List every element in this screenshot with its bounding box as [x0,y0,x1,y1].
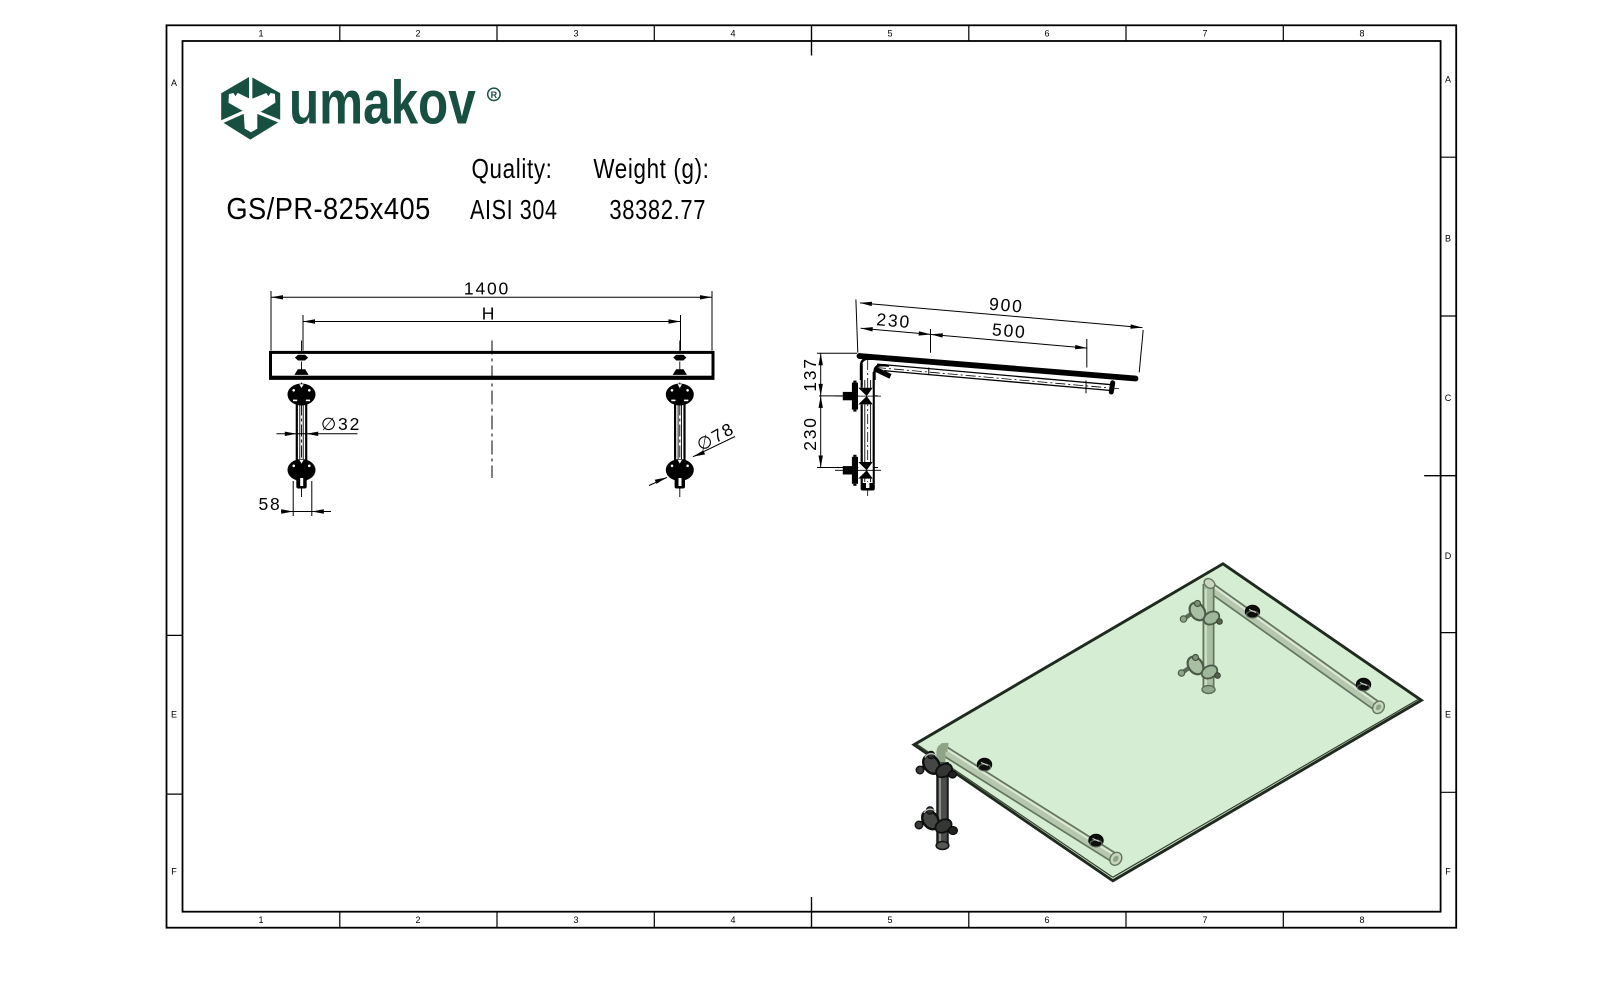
svg-text:C: C [1445,393,1452,403]
svg-text:Weight (g):: Weight (g): [593,154,709,185]
svg-text:137: 137 [800,357,820,392]
svg-text:5: 5 [887,29,892,39]
svg-text:AISI 304: AISI 304 [470,194,558,225]
svg-text:4: 4 [730,29,735,39]
svg-text:umakov: umakov [289,68,476,136]
svg-text:∅32: ∅32 [321,414,361,434]
svg-text:8: 8 [1359,29,1364,39]
svg-text:3: 3 [573,29,578,39]
svg-text:2: 2 [415,29,420,39]
svg-text:1: 1 [258,29,263,39]
svg-text:R: R [491,90,498,100]
svg-text:6: 6 [1044,915,1049,925]
svg-text:38382.77: 38382.77 [609,195,706,226]
svg-text:GS/PR-825x405: GS/PR-825x405 [226,192,430,226]
svg-text:230: 230 [876,309,912,332]
svg-text:A: A [171,78,177,88]
svg-text:900: 900 [988,294,1024,317]
svg-text:E: E [1445,710,1451,720]
svg-text:58: 58 [259,494,282,514]
svg-text:8: 8 [1359,915,1364,925]
svg-text:7: 7 [1202,29,1207,39]
svg-text:7: 7 [1202,915,1207,925]
svg-text:6: 6 [1044,29,1049,39]
svg-text:B: B [1445,233,1451,243]
svg-text:D: D [1445,551,1452,561]
svg-text:1: 1 [258,915,263,925]
svg-text:F: F [1445,866,1451,876]
svg-text:E: E [171,710,177,720]
svg-text:Quality:: Quality: [472,154,553,185]
svg-text:2: 2 [415,915,420,925]
svg-text:F: F [171,867,177,877]
svg-text:4: 4 [730,915,735,925]
svg-text:5: 5 [887,915,892,925]
svg-text:230: 230 [800,416,820,451]
svg-text:500: 500 [991,319,1027,342]
svg-text:1400: 1400 [464,279,510,299]
svg-text:H: H [482,303,496,323]
svg-text:3: 3 [573,915,578,925]
svg-text:A: A [1445,75,1451,85]
